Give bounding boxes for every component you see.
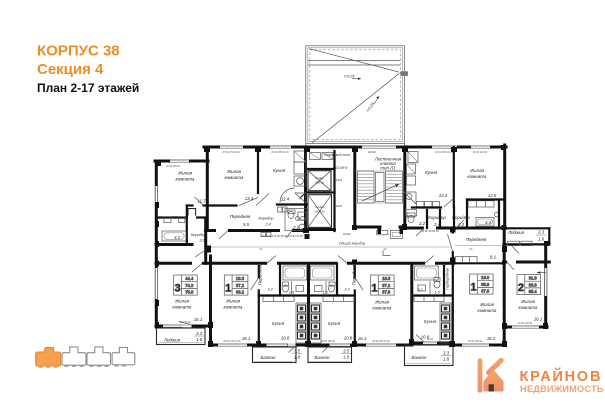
svg-text:44.4: 44.4 xyxy=(185,276,194,281)
svg-text:комната: комната xyxy=(468,174,487,179)
svg-text:16.2: 16.2 xyxy=(487,336,496,341)
svg-text:тип Л1: тип Л1 xyxy=(380,166,396,171)
svg-text:20 90 190 90: 20 90 190 90 xyxy=(321,340,336,343)
svg-text:Жилая: Жилая xyxy=(174,299,190,304)
svg-text:37.2: 37.2 xyxy=(236,283,245,288)
svg-text:Лифтовый холл: Лифтовый холл xyxy=(323,153,350,157)
svg-text:20 90 150 90: 20 90 150 90 xyxy=(166,165,181,168)
svg-text:1.8: 1.8 xyxy=(343,355,350,360)
svg-text:1000 кг: 1000 кг xyxy=(314,210,325,214)
svg-text:Балкон: Балкон xyxy=(314,355,330,360)
svg-text:Общий коридор: Общий коридор xyxy=(339,242,366,246)
svg-text:i=0,05: i=0,05 xyxy=(344,74,355,78)
svg-text:Лоджия: Лоджия xyxy=(163,338,181,343)
svg-text:16.1: 16.1 xyxy=(242,336,251,341)
svg-text:Жилая: Жилая xyxy=(469,168,485,173)
svg-text:10.8: 10.8 xyxy=(281,336,290,341)
svg-text:Лоджия: Лоджия xyxy=(507,230,525,235)
svg-text:20 90 140 90: 20 90 140 90 xyxy=(473,151,488,154)
svg-text:2.3: 2.3 xyxy=(457,222,465,227)
svg-text:19.3: 19.3 xyxy=(382,276,391,281)
svg-text:20 90 200 90: 20 90 200 90 xyxy=(468,340,483,343)
svg-text:Балкон: Балкон xyxy=(260,355,276,360)
svg-text:КОРПУС 38: КОРПУС 38 xyxy=(37,43,120,60)
svg-text:35.9: 35.9 xyxy=(481,282,490,287)
svg-text:Жилая: Жилая xyxy=(226,169,242,174)
svg-text:3.2: 3.2 xyxy=(344,288,350,292)
svg-text:комната: комната xyxy=(373,306,392,311)
svg-text:Е130: Е130 xyxy=(336,178,343,182)
svg-text:1.8: 1.8 xyxy=(294,355,301,360)
svg-text:1: 1 xyxy=(371,282,377,294)
svg-text:65.4: 65.4 xyxy=(529,289,538,294)
svg-text:20 90 38 90 20: 20 90 38 90 20 xyxy=(421,229,439,233)
svg-text:комната: комната xyxy=(519,305,538,310)
svg-text:ПБЗ МГН: ПБЗ МГН xyxy=(333,166,348,170)
svg-text:комната: комната xyxy=(176,177,195,182)
svg-text:3.4: 3.4 xyxy=(485,220,492,225)
svg-text:19.0: 19.0 xyxy=(481,275,490,280)
svg-text:11.7: 11.7 xyxy=(197,199,206,204)
svg-text:3.3: 3.3 xyxy=(538,230,545,235)
svg-text:Коридор: Коридор xyxy=(191,233,206,237)
svg-text:3.5: 3.5 xyxy=(294,349,301,354)
svg-text:Лифт: Лифт xyxy=(314,176,324,180)
svg-text:20 90 200 90: 20 90 200 90 xyxy=(518,322,533,325)
svg-text:комната: комната xyxy=(224,305,243,310)
svg-text:Лифт: Лифт xyxy=(314,205,324,209)
svg-text:20 90 215 90 20: 20 90 215 90 20 xyxy=(223,340,241,343)
svg-text:8.1: 8.1 xyxy=(490,255,497,260)
svg-text:2.2: 2.2 xyxy=(292,225,300,230)
svg-text:Жилая: Жилая xyxy=(225,299,241,304)
svg-text:Коридор: Коридор xyxy=(428,215,446,220)
svg-text:Е1540: Е1540 xyxy=(343,232,351,236)
svg-text:3.5: 3.5 xyxy=(343,349,350,354)
svg-text:Коридор: Коридор xyxy=(259,217,274,221)
svg-text:20 90 175 90 20: 20 90 175 90 20 xyxy=(222,151,240,154)
svg-text:Е1540: Е1540 xyxy=(368,150,376,154)
svg-text:Передняя: Передняя xyxy=(258,264,263,285)
svg-text:Гардеробная: Гардеробная xyxy=(446,268,450,290)
svg-text:20 20 90 175 90 38 90 175 90 2: 20 20 90 175 90 38 90 175 90 20 20 xyxy=(261,234,303,238)
svg-text:10.8: 10.8 xyxy=(344,336,353,341)
svg-text:63.8: 63.8 xyxy=(529,282,538,287)
svg-text:36.2: 36.2 xyxy=(236,290,245,295)
svg-text:Передняя: Передняя xyxy=(466,237,487,242)
svg-text:20 90 220 90 20: 20 90 220 90 20 xyxy=(372,340,390,343)
svg-text:75.9: 75.9 xyxy=(185,290,194,295)
svg-text:2.4: 2.4 xyxy=(433,222,441,227)
svg-text:31.8: 31.8 xyxy=(529,276,538,281)
svg-text:комната: комната xyxy=(478,308,497,313)
svg-text:3.2: 3.2 xyxy=(417,288,423,292)
svg-text:1.6: 1.6 xyxy=(196,337,203,342)
svg-text:37.9: 37.9 xyxy=(481,289,490,294)
svg-text:Кухня: Кухня xyxy=(273,168,286,173)
svg-text:1.5: 1.5 xyxy=(322,291,328,295)
svg-text:2.2: 2.2 xyxy=(418,221,426,226)
svg-text:37.8: 37.8 xyxy=(382,290,391,295)
svg-text:Передняя: Передняя xyxy=(352,264,357,285)
svg-text:Секция 4: Секция 4 xyxy=(37,61,104,78)
svg-text:20 90 155 90 20: 20 90 155 90 20 xyxy=(271,151,289,154)
svg-text:90 94: 90 94 xyxy=(427,338,434,341)
svg-text:Жилая: Жилая xyxy=(177,171,193,176)
svg-text:1.8: 1.8 xyxy=(443,357,450,362)
svg-text:3.3: 3.3 xyxy=(196,331,203,336)
svg-text:12.5: 12.5 xyxy=(488,193,497,198)
svg-text:74.3: 74.3 xyxy=(185,283,194,288)
svg-text:3.2: 3.2 xyxy=(267,288,273,292)
svg-text:План 2-17 этажей: План 2-17 этажей xyxy=(37,81,139,95)
svg-text:16.1: 16.1 xyxy=(194,317,203,322)
svg-text:13.4: 13.4 xyxy=(439,193,448,198)
svg-text:16.1: 16.1 xyxy=(534,317,543,322)
svg-text:Кухня: Кухня xyxy=(272,321,285,326)
svg-text:Кухня: Кухня xyxy=(328,321,341,326)
svg-text:13.4: 13.4 xyxy=(245,196,254,201)
svg-text:Е160: Е160 xyxy=(336,204,343,208)
svg-text:3.2: 3.2 xyxy=(199,239,205,243)
svg-text:Жилая: Жилая xyxy=(520,299,536,304)
svg-text:комната: комната xyxy=(225,175,244,180)
svg-text:Коридор: Коридор xyxy=(452,215,470,220)
svg-text:19.3: 19.3 xyxy=(236,276,245,281)
svg-text:20 90 185 90 20: 20 90 185 90 20 xyxy=(435,151,453,154)
svg-text:НЕДВИЖИМОСТЬ: НЕДВИЖИМОСТЬ xyxy=(520,384,604,394)
svg-text:Передняя: Передняя xyxy=(230,214,251,219)
svg-text:1.6: 1.6 xyxy=(538,237,545,242)
svg-text:11.4: 11.4 xyxy=(281,197,290,202)
svg-text:5.5: 5.5 xyxy=(243,222,250,227)
svg-text:16.1: 16.1 xyxy=(358,336,367,341)
svg-text:2.4: 2.4 xyxy=(264,223,270,227)
svg-text:Балкон: Балкон xyxy=(411,355,427,360)
svg-text:90 135 90: 90 135 90 xyxy=(180,321,191,324)
svg-text:630 кг: 630 кг xyxy=(315,181,324,185)
svg-text:3: 3 xyxy=(174,282,180,294)
svg-text:1.5: 1.5 xyxy=(289,291,295,295)
svg-text:37.2: 37.2 xyxy=(382,283,391,288)
svg-text:1: 1 xyxy=(470,281,476,293)
svg-text:КРАЙНОВ: КРАЙНОВ xyxy=(520,367,603,385)
svg-text:комната: комната xyxy=(173,305,192,310)
svg-text:Жилая: Жилая xyxy=(374,300,390,305)
svg-text:1.5: 1.5 xyxy=(434,291,440,295)
svg-text:2: 2 xyxy=(518,282,524,294)
svg-text:Кухня: Кухня xyxy=(425,170,438,175)
svg-text:Жилая: Жилая xyxy=(479,302,495,307)
svg-text:3.2: 3.2 xyxy=(174,235,181,240)
svg-text:1: 1 xyxy=(225,282,231,294)
svg-text:Кухня: Кухня xyxy=(424,319,437,324)
svg-text:3.3: 3.3 xyxy=(443,351,450,356)
